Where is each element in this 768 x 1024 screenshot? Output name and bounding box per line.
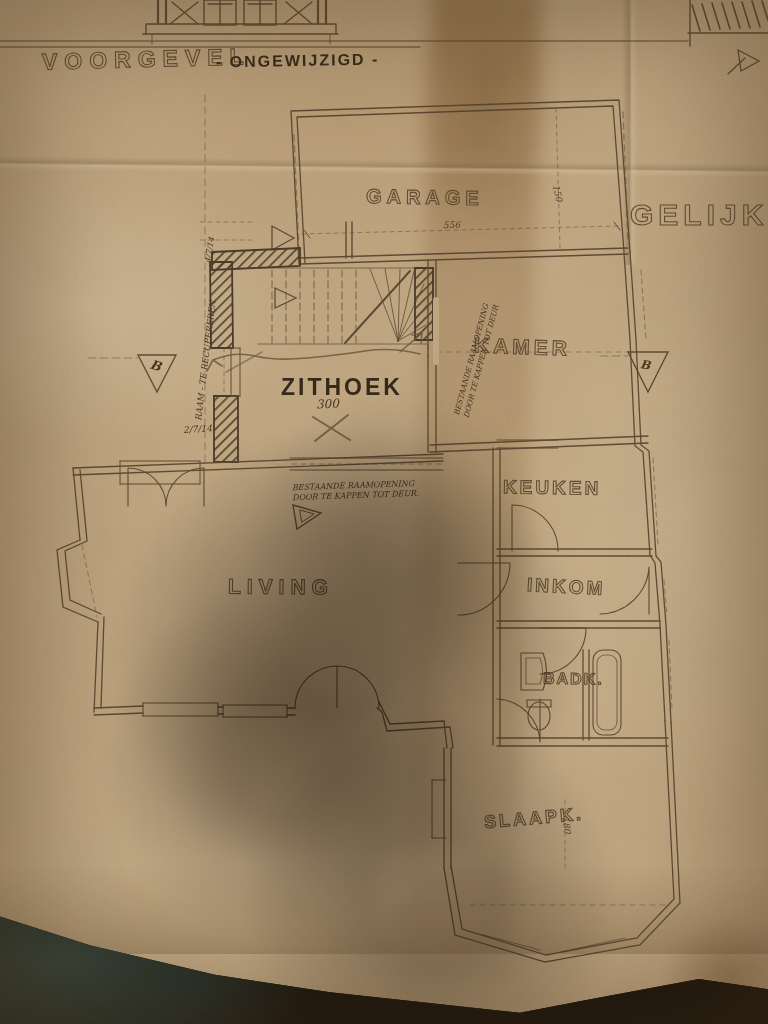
photo-of-floorplan: VOORGEVEL - ONGEWIJZIGD - GELIJKV GARAGE…: [0, 0, 768, 1024]
photo-vignette: [0, 0, 768, 1024]
